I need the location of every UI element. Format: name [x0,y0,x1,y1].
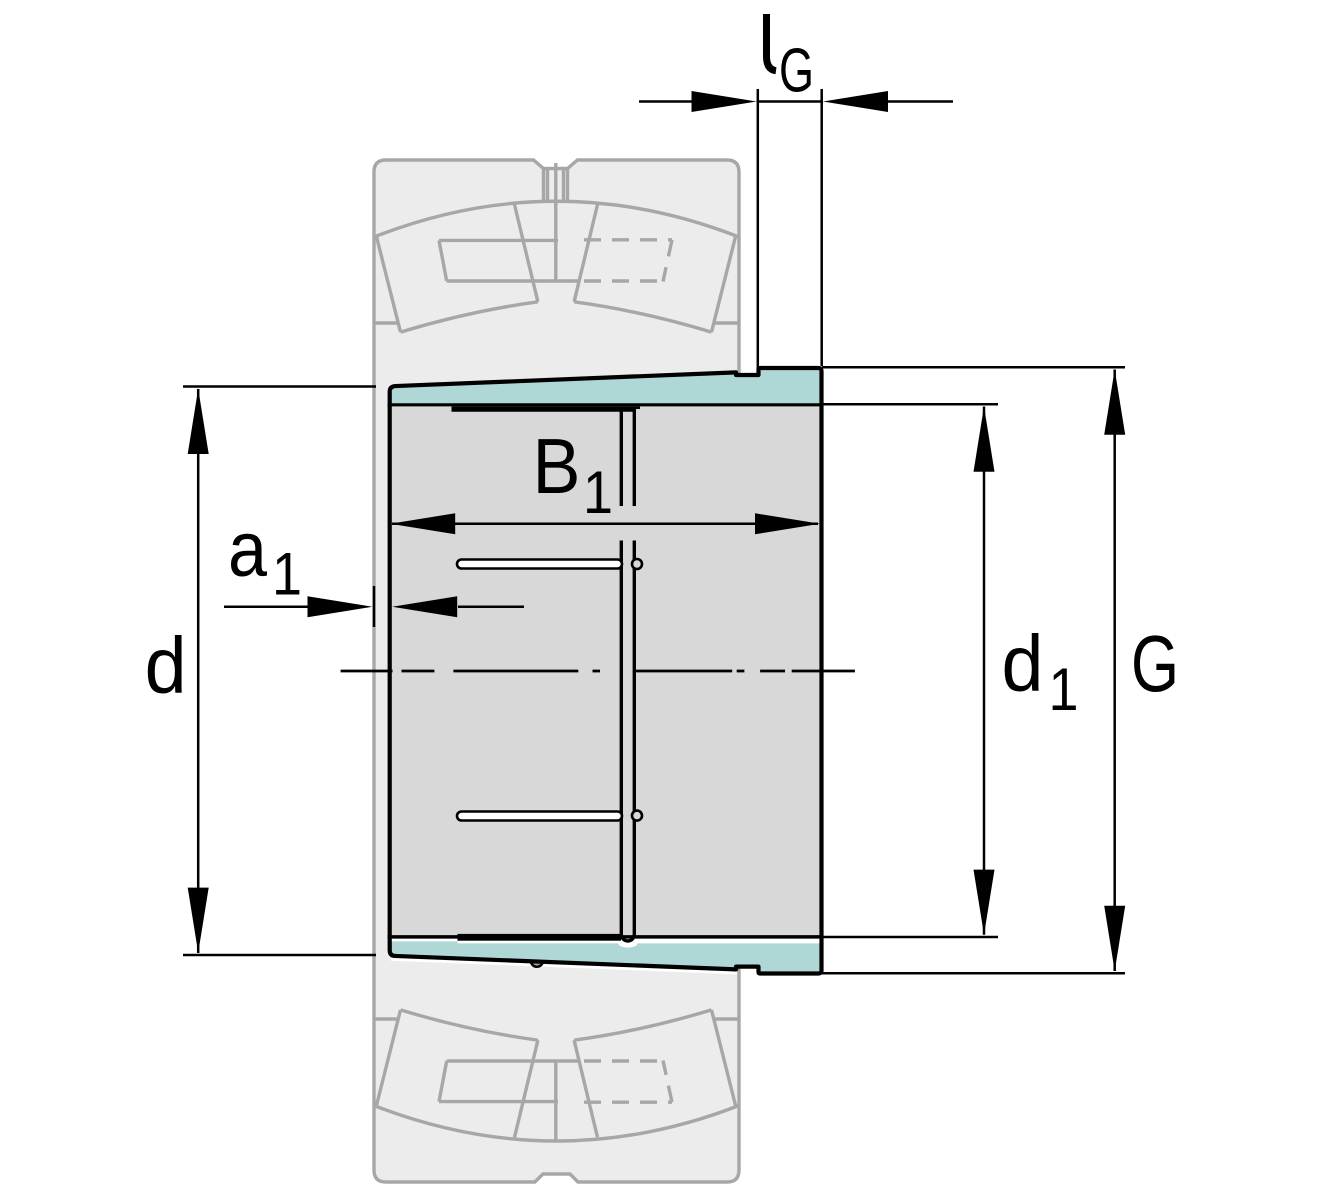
svg-text:1: 1 [1049,656,1079,723]
svg-text:1: 1 [583,459,613,526]
svg-text:d: d [1002,619,1044,708]
svg-text:1: 1 [272,541,302,608]
svg-text:G: G [1131,619,1179,708]
svg-text:B: B [533,422,581,510]
svg-text:d: d [145,621,187,710]
svg-text:a: a [228,505,268,593]
svg-text:G: G [779,37,814,106]
